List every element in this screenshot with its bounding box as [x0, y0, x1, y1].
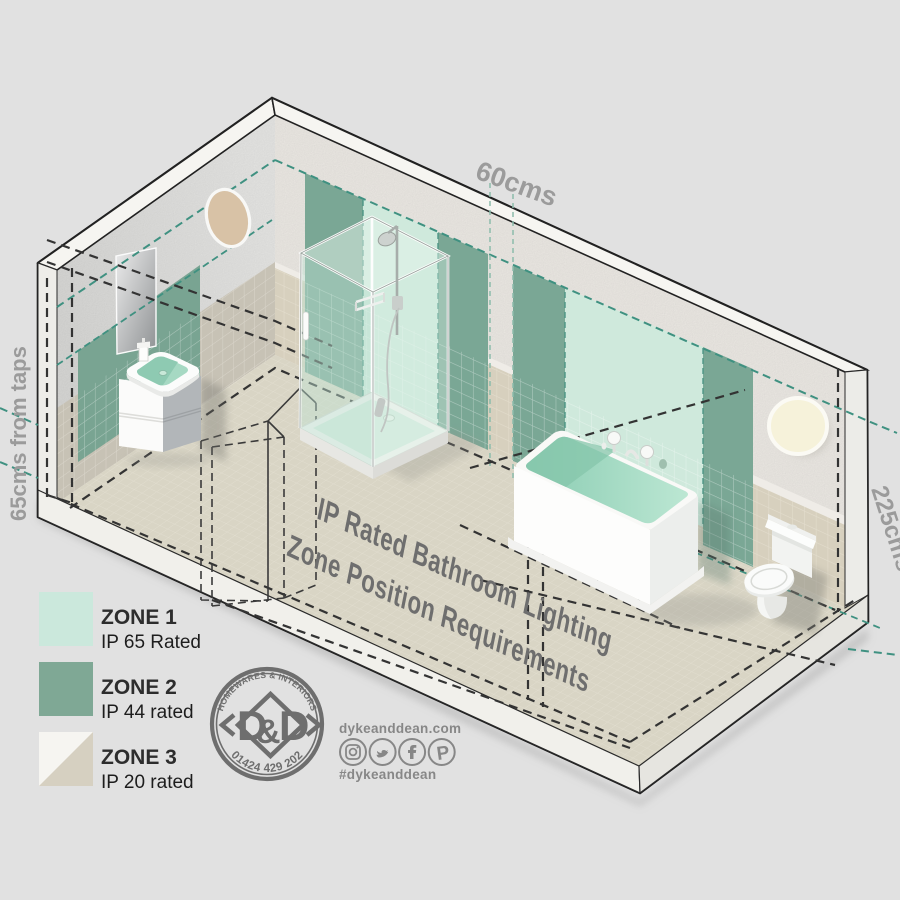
svg-text:ZONE 3: ZONE 3 [101, 746, 177, 769]
svg-text:65cms from taps: 65cms from taps [6, 346, 31, 521]
svg-text:ZONE 1: ZONE 1 [101, 606, 177, 629]
svg-text:dykeanddean.com: dykeanddean.com [339, 721, 461, 736]
svg-text:&: & [256, 713, 281, 751]
svg-text:#dykeanddean: #dykeanddean [339, 767, 436, 782]
svg-text:IP 44 rated: IP 44 rated [101, 702, 194, 723]
svg-text:D: D [279, 702, 309, 749]
svg-text:ZONE 2: ZONE 2 [101, 676, 177, 699]
svg-text:IP 20 rated: IP 20 rated [101, 772, 194, 793]
svg-text:IP 65 Rated: IP 65 Rated [101, 632, 201, 653]
